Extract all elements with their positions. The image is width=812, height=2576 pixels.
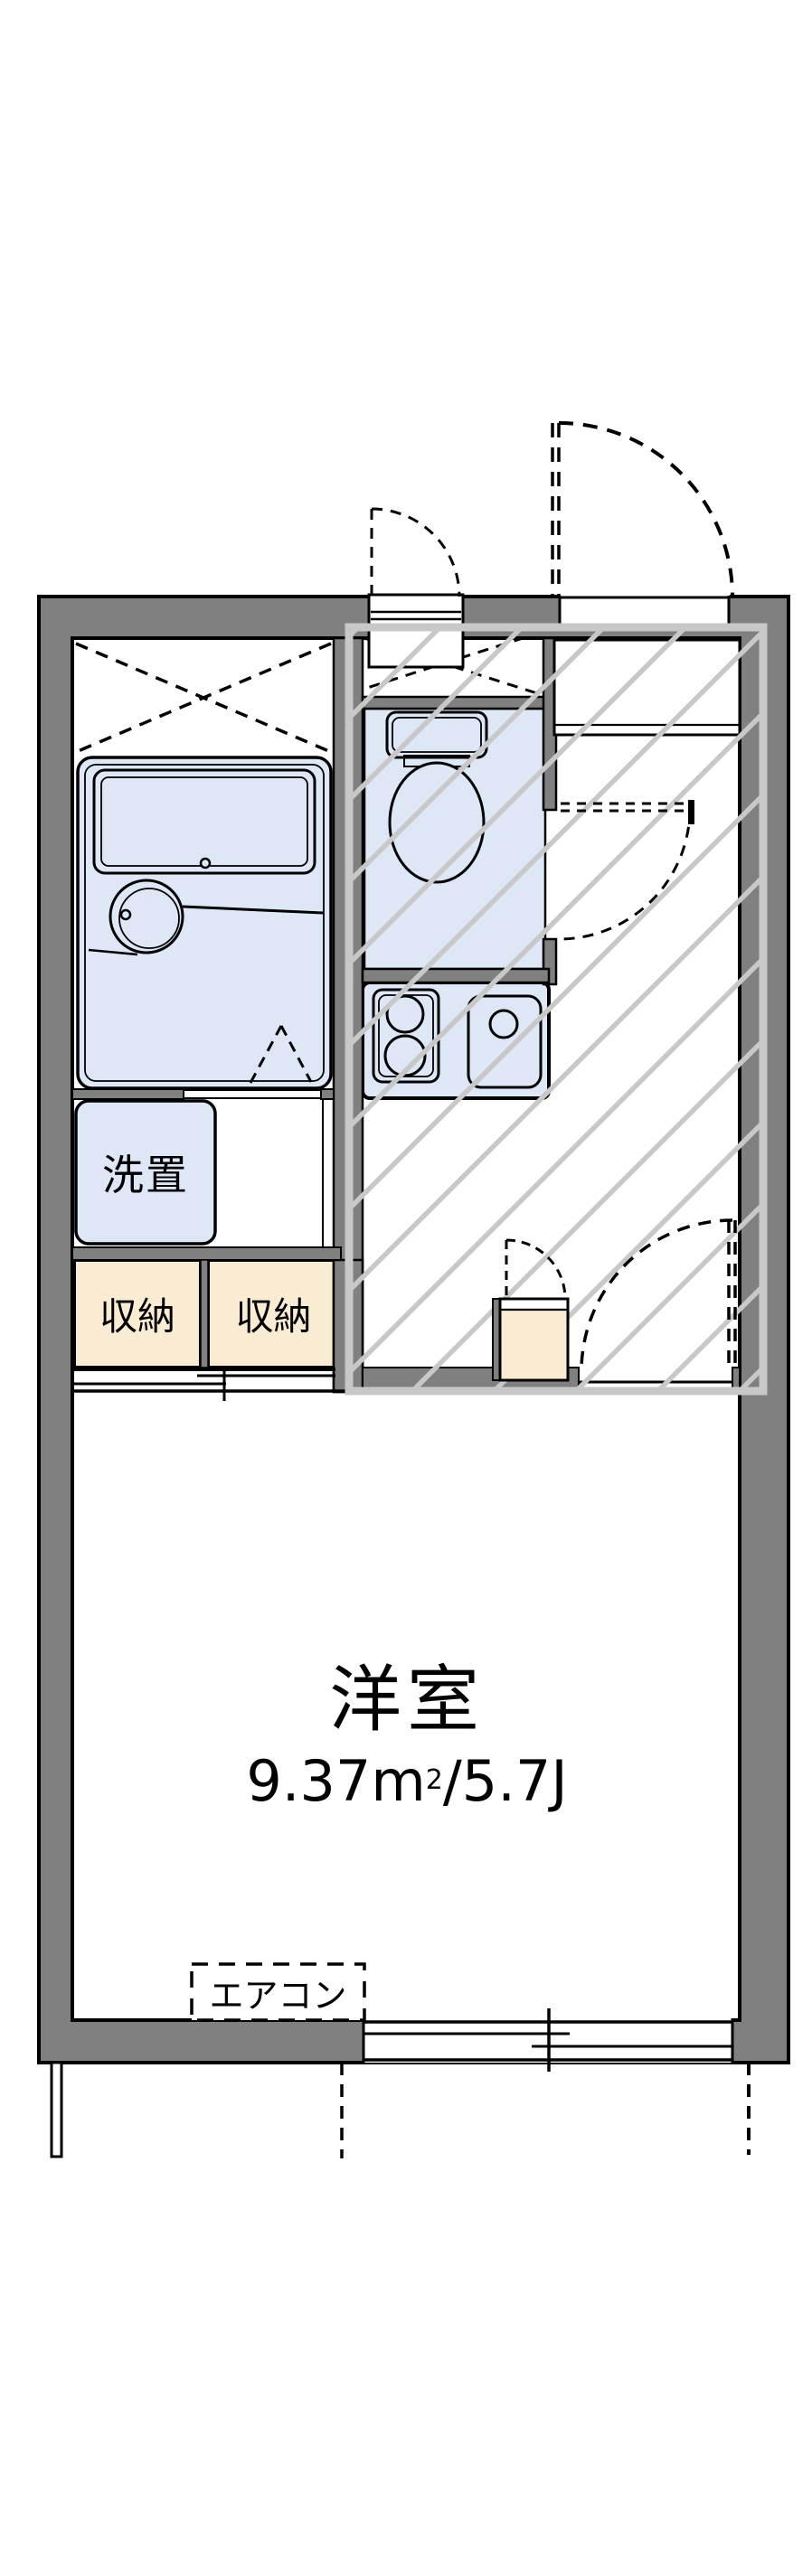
floor-plan: 洗置 収納 収納 洋室 9.37m2/5.7J エアコン [0, 0, 812, 2576]
exterior-marks [52, 2063, 749, 2158]
washing-machine-space [76, 1101, 215, 1244]
shoe-box [500, 1310, 568, 1380]
entrance-door-swing [559, 423, 732, 597]
tub-drain [201, 859, 210, 868]
aircon-box [192, 1964, 364, 2020]
entry-hall-hatched-floor [349, 627, 763, 1391]
entrance-opening [559, 595, 730, 628]
closet-left [74, 1260, 201, 1368]
laundry-space [76, 1099, 323, 1247]
floor-plan-drawing [0, 0, 812, 2576]
service-door-swing [372, 509, 459, 597]
boundary-post [52, 2063, 61, 2157]
entry-fixtures [493, 1299, 568, 1380]
closet-right [208, 1260, 339, 1368]
bathroom [76, 644, 331, 1088]
